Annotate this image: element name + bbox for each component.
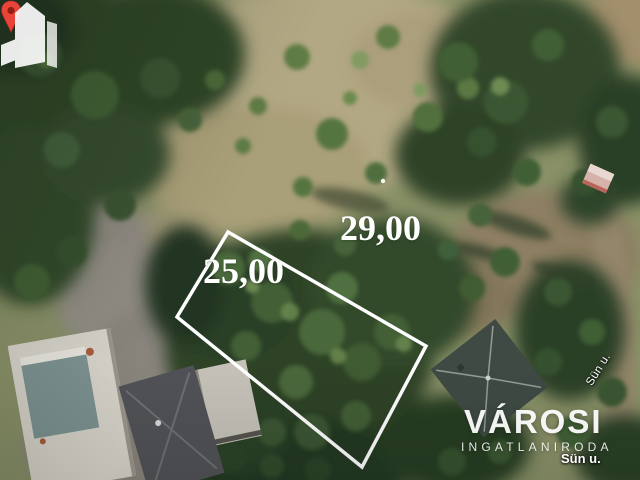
brand-name: VÁROSI xyxy=(464,405,603,438)
parcel-length-label: 29,00 xyxy=(340,210,421,246)
parcel-width-label: 25,00 xyxy=(203,253,284,289)
satellite-listing-photo: 25,00 29,00 Sün u. Sün u. VÁROSI INGATLA… xyxy=(0,0,640,480)
brand-subtitle: INGATLANIRODA xyxy=(461,441,613,453)
brand-logo-icon xyxy=(0,0,58,70)
dot-marker xyxy=(381,179,385,183)
